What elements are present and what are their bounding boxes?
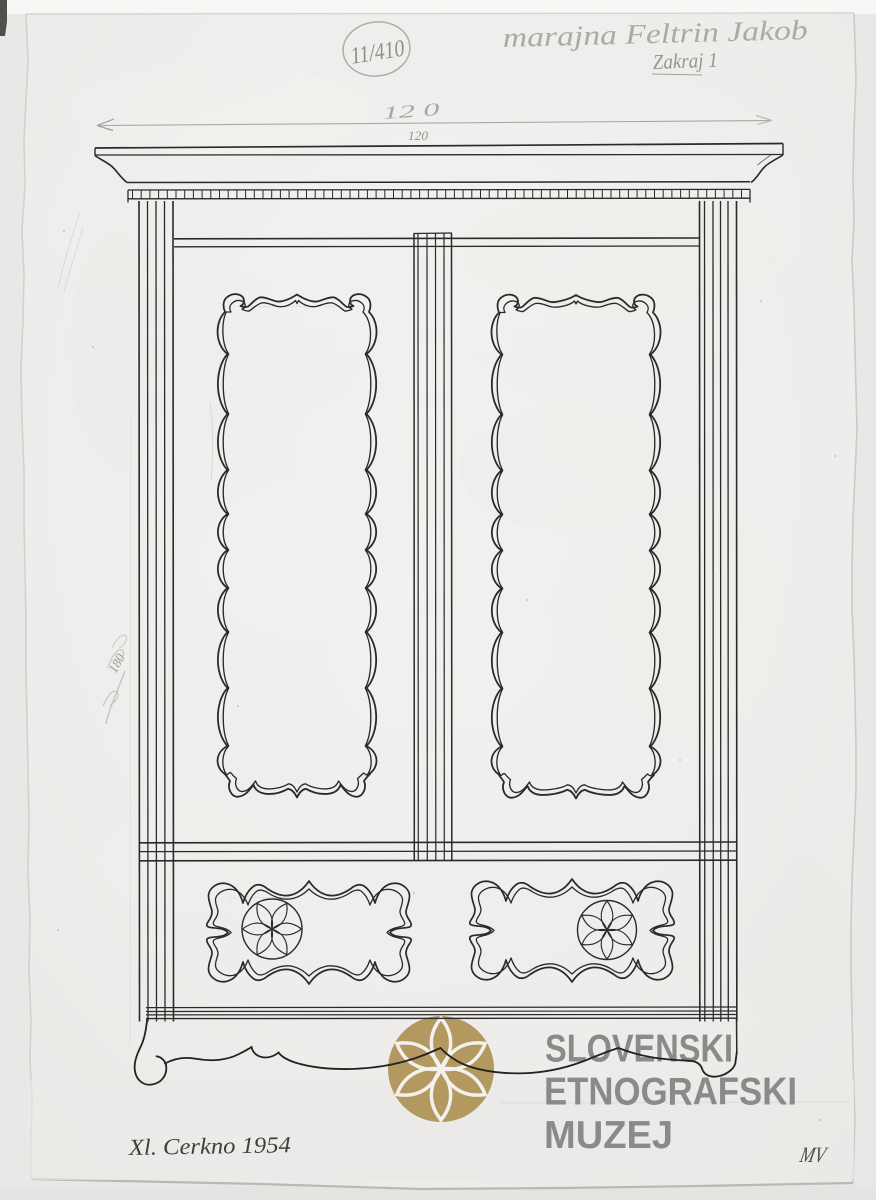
svg-text:MUZEJ: MUZEJ: [544, 1114, 673, 1157]
svg-text:Xl. Cerkno 1954: Xl. Cerkno 1954: [128, 1132, 291, 1160]
svg-text:12 0: 12 0: [382, 99, 440, 123]
svg-text:120: 120: [408, 128, 429, 143]
svg-text:Zakraj 1: Zakraj 1: [652, 48, 718, 74]
svg-text:ETNOGRAFSKI: ETNOGRAFSKI: [544, 1071, 797, 1114]
